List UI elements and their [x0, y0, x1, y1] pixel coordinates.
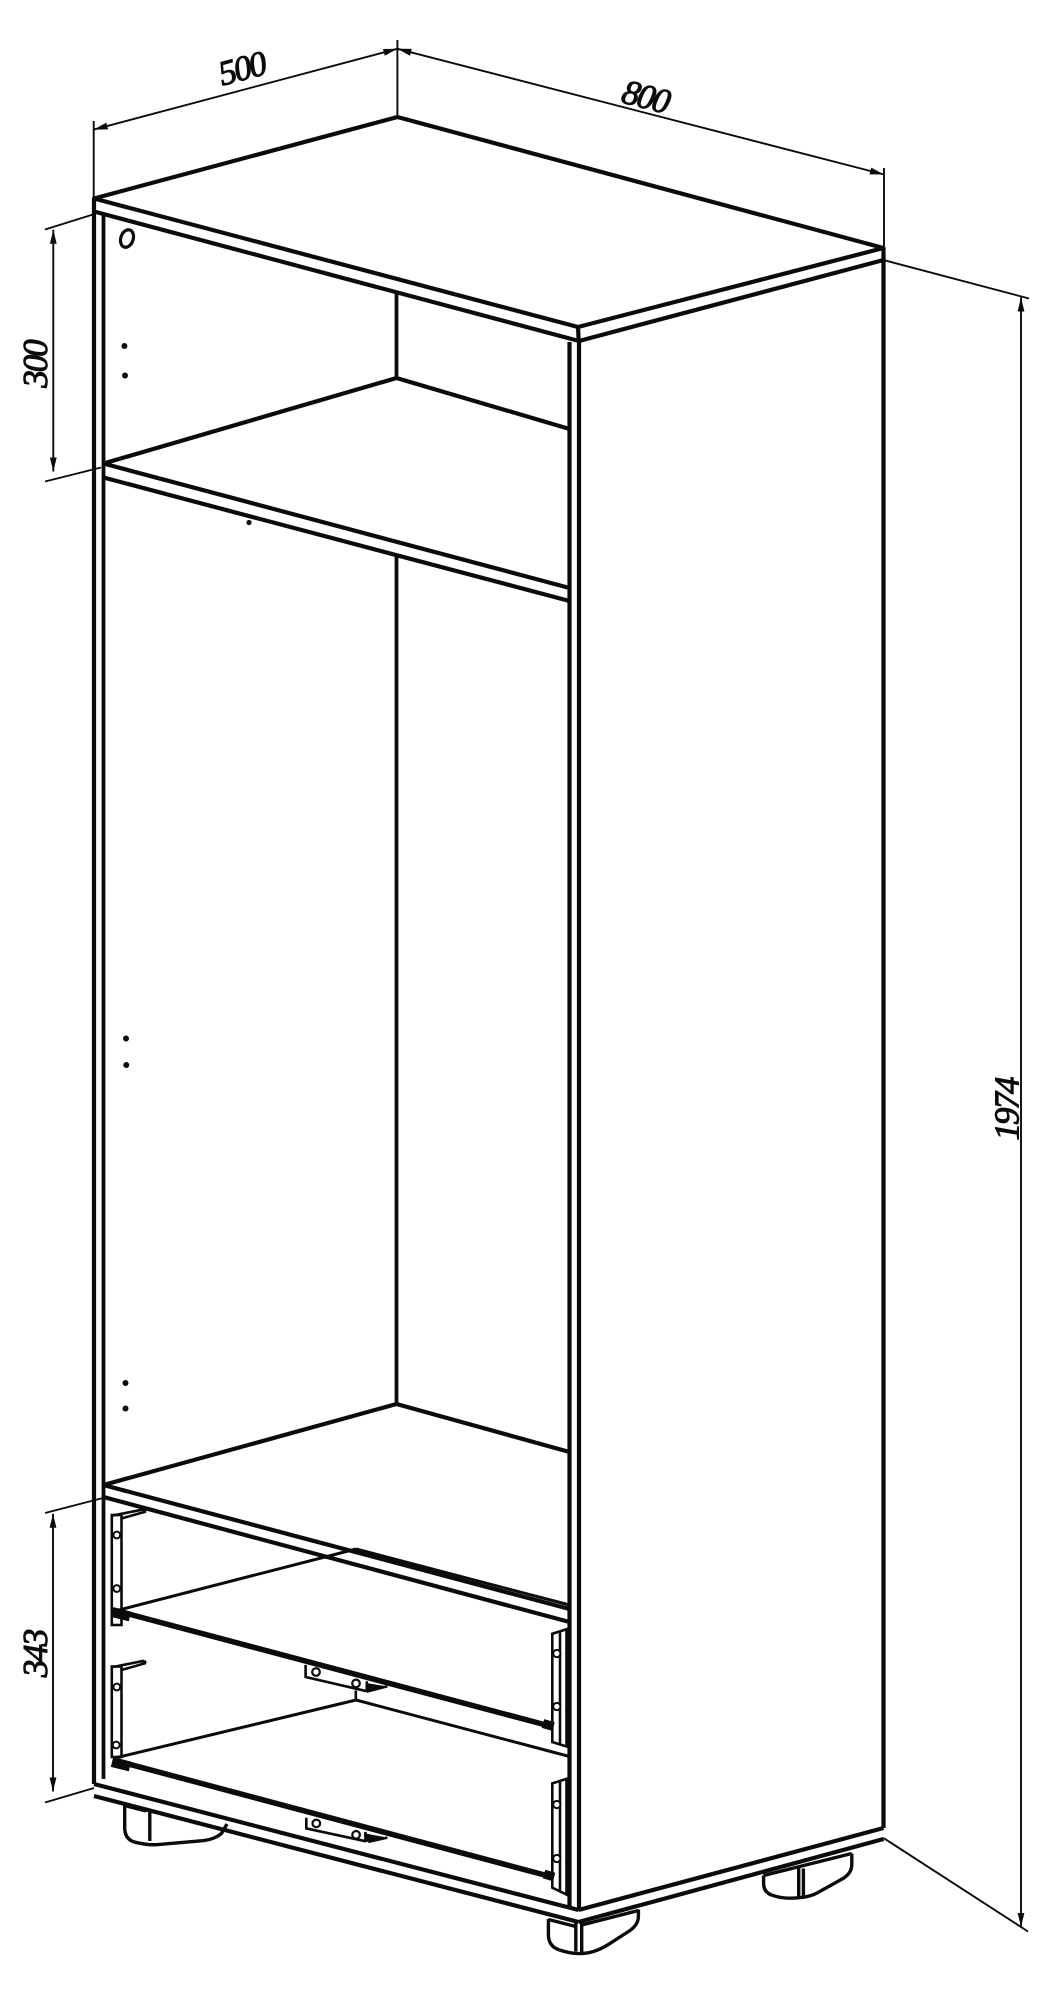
svg-text:300: 300: [16, 339, 55, 389]
svg-text:343: 343: [16, 1629, 55, 1678]
svg-text:1974: 1974: [988, 1077, 1027, 1141]
